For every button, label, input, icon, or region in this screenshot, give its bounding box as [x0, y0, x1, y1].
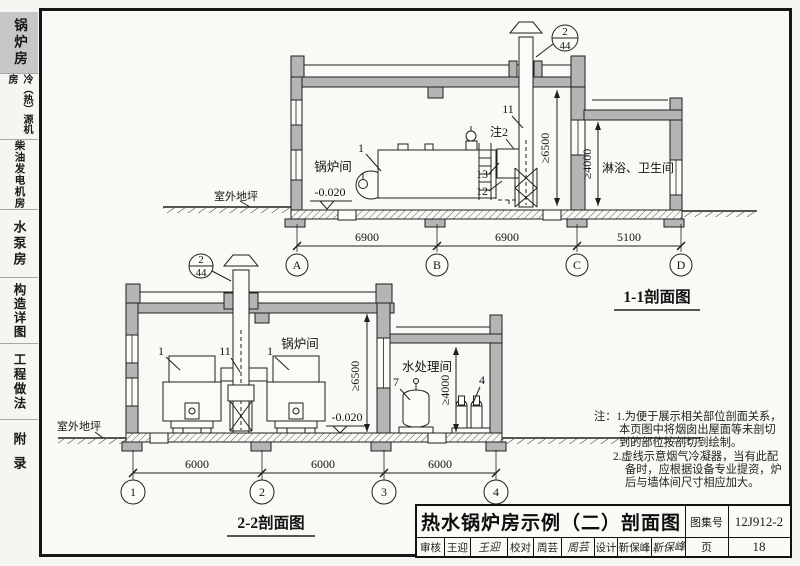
room-label-water-treatment: 水处理间	[402, 360, 452, 374]
atlas-number-label: 图集号	[685, 506, 728, 537]
room-label-shower-toilet: 淋浴、卫生间	[602, 161, 674, 175]
section-2-2-caption: 2-2剖面图	[237, 513, 304, 532]
reviewer-name: 王迎	[445, 538, 471, 556]
dim-span-bc: 6900	[495, 230, 519, 244]
room-label-boiler-room: 锅炉间	[314, 159, 352, 174]
note-line: 后与墙体间尺寸相应加大。	[625, 477, 800, 490]
designer-signature: 靳保峰	[652, 538, 685, 556]
sidebar-item-engineering-practice[interactable]: 工程做法	[0, 344, 38, 420]
note-line: 本页图中将烟囱出屋面等未剖切	[619, 424, 800, 437]
page-number: 18	[728, 538, 790, 556]
tag-13: 13	[476, 167, 488, 181]
sheet-title: 热水锅炉房示例（二）剖面图	[417, 506, 685, 537]
grid-bubble-c: C	[573, 258, 581, 272]
detail-ref-number: 2	[562, 26, 568, 38]
tag-tank-7: 7	[393, 375, 399, 389]
detail-ref-number: 2	[198, 254, 204, 266]
tag-boiler-right: 1	[267, 344, 273, 358]
dim-height-4000: ≥4000	[438, 375, 452, 406]
grid-bubble-1: 1	[130, 485, 136, 499]
designer-label: 设计	[595, 538, 618, 556]
note-line: 注：1.为便于展示相关部位剖面关系，	[594, 411, 800, 424]
tag-boiler-left: 1	[158, 344, 164, 358]
room-label-boiler-room: 锅炉间	[281, 336, 319, 351]
grid-bubble-a: A	[293, 258, 302, 272]
dim-span-cd: 5100	[617, 230, 641, 244]
outdoor-ground-label: 室外地坪	[214, 189, 258, 203]
sidebar-item-boiler-room[interactable]: 锅炉房	[0, 12, 38, 74]
tag-chimney-11: 11	[502, 102, 514, 116]
checker-signature: 周芸	[562, 538, 595, 556]
detail-ref-page: 44	[196, 267, 208, 279]
checker-label: 校对	[508, 538, 534, 556]
detail-ref-page: 44	[560, 40, 572, 52]
sidebar-item-cooling-heating-source[interactable]: 冷（热）源机房	[0, 74, 38, 140]
section-1-1-drawing: 2 44 ≥6500 ≥4000 锅炉间 淋浴、卫生间 室外地坪 -0.020 …	[163, 22, 757, 310]
dim-height-6500: ≥6500	[538, 133, 552, 164]
sidebar-tabs: 锅炉房 冷（热）源机房 柴油发电机房 水泵房 构造详图 工程做法 附录	[0, 0, 39, 566]
title-block: 热水锅炉房示例（二）剖面图 图集号 12J912-2 审核 王迎 王迎 校对 周…	[415, 504, 792, 558]
dim-height-4000: ≥4000	[580, 149, 594, 180]
section-2-2-drawing: 2 44 ≥6500 ≥4000 锅炉间 水处	[57, 254, 700, 536]
page-label: 页	[685, 538, 728, 556]
tag-boiler-1: 1	[358, 141, 364, 155]
designer-name: 靳保峰	[618, 538, 652, 556]
sidebar-item-construction-details[interactable]: 构造详图	[0, 278, 38, 344]
atlas-number-value: 12J912-2	[728, 506, 790, 537]
approval-row: 审核 王迎 王迎 校对 周芸 周芸 设计 靳保峰 靳保峰	[417, 538, 685, 556]
checker-name: 周芸	[534, 538, 562, 556]
note-line: 备时，应根据设备专业提资，炉	[625, 464, 800, 477]
grid-bubble-4: 4	[493, 485, 499, 499]
section-1-1-caption: 1-1剖面图	[623, 287, 690, 306]
grid-bubble-d: D	[677, 258, 686, 272]
outdoor-ground-label: 室外地坪	[57, 419, 101, 433]
dim-height-6500: ≥6500	[348, 361, 362, 392]
dim-span-23: 6000	[311, 457, 335, 471]
reviewer-signature: 王迎	[471, 538, 508, 556]
tag-pumps-4: 4	[479, 373, 485, 387]
dim-span-12: 6000	[185, 457, 209, 471]
note-line: 2.虚线示意烟气冷凝器，当有此配	[613, 451, 800, 464]
dim-span-34: 6000	[428, 457, 452, 471]
level-mark: -0.020	[315, 185, 346, 199]
notes-block: 注：1.为便于展示相关部位剖面关系， 本页图中将烟囱出屋面等未剖切 到的部位按剖…	[594, 411, 800, 490]
sidebar-item-diesel-generator[interactable]: 柴油发电机房	[0, 140, 38, 210]
grid-bubble-2: 2	[259, 485, 265, 499]
grid-bubble-b: B	[433, 258, 441, 272]
signature: 周芸	[566, 538, 589, 555]
grid-bubble-3: 3	[381, 485, 387, 499]
tag-chimney-11: 11	[219, 344, 231, 358]
note-line: 到的部位按剖切到绘制。	[619, 437, 800, 450]
tag-12: 12	[476, 184, 488, 198]
tag-note2: 注2	[490, 124, 508, 139]
level-mark: -0.020	[332, 410, 363, 424]
reviewer-label: 审核	[417, 538, 445, 556]
dim-span-ab: 6900	[355, 230, 379, 244]
sidebar-item-appendix[interactable]: 附录	[0, 420, 38, 492]
signature: 王迎	[477, 538, 500, 555]
sidebar-item-pump-room[interactable]: 水泵房	[0, 210, 38, 278]
atlas-page: 锅炉房 冷（热）源机房 柴油发电机房 水泵房 构造详图 工程做法 附录	[0, 0, 800, 566]
signature: 靳保峰	[652, 538, 685, 556]
